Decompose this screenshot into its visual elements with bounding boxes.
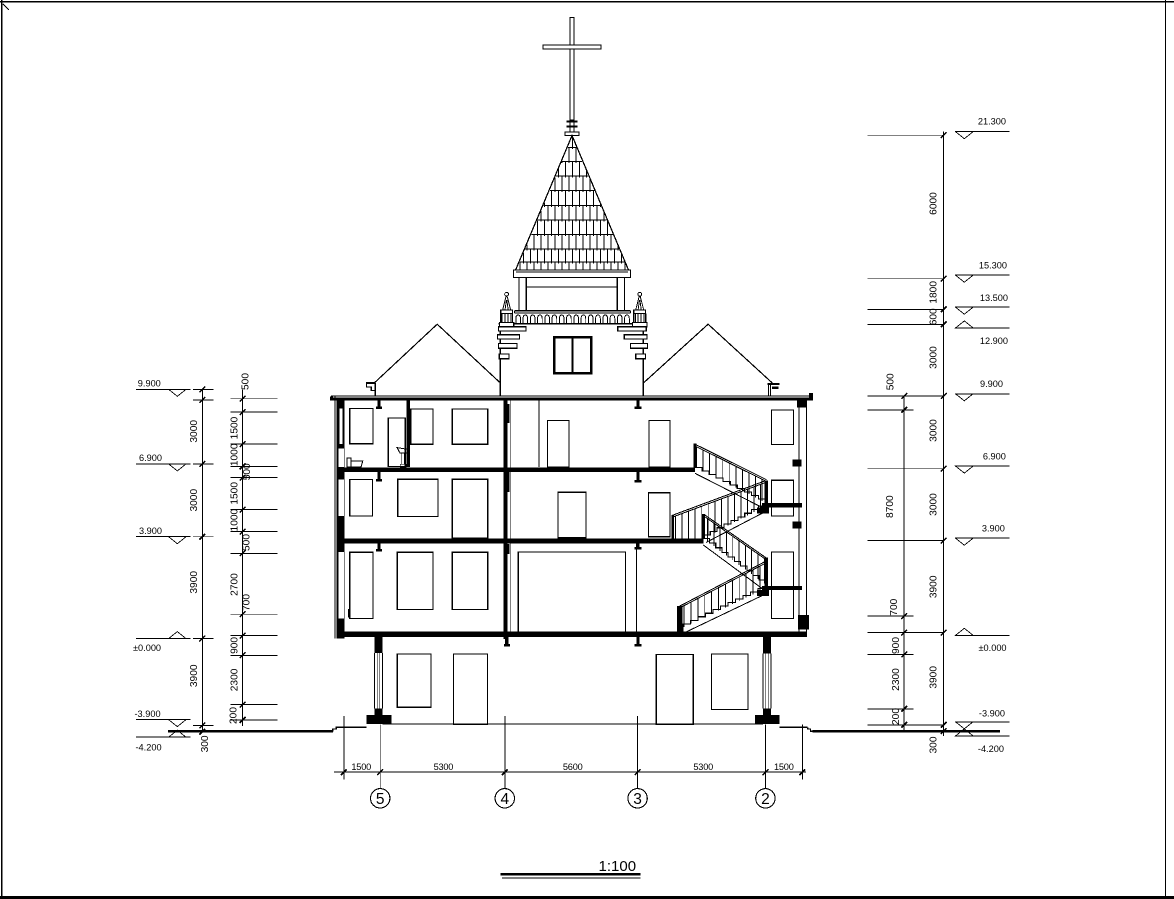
svg-text:3.900: 3.900 [982, 524, 1005, 534]
svg-text:1:100: 1:100 [599, 858, 637, 875]
svg-text:9.900: 9.900 [980, 379, 1003, 389]
svg-text:1000: 1000 [229, 508, 240, 531]
svg-text:4: 4 [500, 791, 509, 808]
svg-text:900: 900 [891, 637, 902, 654]
svg-text:300: 300 [929, 736, 940, 753]
svg-text:200: 200 [229, 707, 240, 724]
svg-text:3000: 3000 [928, 419, 939, 442]
svg-text:-3.900: -3.900 [135, 709, 161, 719]
svg-text:3900: 3900 [928, 666, 939, 689]
svg-text:500: 500 [241, 534, 252, 551]
svg-text:3.900: 3.900 [139, 526, 162, 536]
svg-text:9.900: 9.900 [138, 379, 161, 389]
svg-text:2700: 2700 [229, 573, 240, 596]
svg-text:2: 2 [761, 791, 770, 808]
svg-text:2300: 2300 [891, 668, 902, 691]
svg-text:700: 700 [889, 598, 900, 615]
svg-text:21.300: 21.300 [978, 117, 1006, 127]
svg-text:12.900: 12.900 [980, 336, 1008, 346]
svg-text:3000: 3000 [189, 489, 200, 512]
svg-text:5300: 5300 [434, 762, 454, 772]
svg-text:5300: 5300 [693, 762, 713, 772]
svg-text:6.900: 6.900 [139, 453, 162, 463]
svg-text:-4.200: -4.200 [978, 744, 1004, 754]
svg-text:1500: 1500 [774, 762, 794, 772]
svg-text:1000: 1000 [229, 443, 240, 466]
svg-text:3900: 3900 [928, 575, 939, 598]
svg-text:3000: 3000 [189, 420, 200, 443]
svg-text:200: 200 [891, 708, 902, 725]
svg-text:-3.900: -3.900 [979, 709, 1005, 719]
svg-text:700: 700 [241, 594, 252, 611]
svg-text:3000: 3000 [928, 493, 939, 516]
svg-text:3900: 3900 [189, 571, 200, 594]
svg-text:500: 500 [242, 463, 253, 480]
svg-text:500: 500 [886, 373, 897, 390]
svg-text:900: 900 [229, 637, 240, 654]
svg-text:±0.000: ±0.000 [133, 643, 161, 653]
svg-text:5: 5 [376, 791, 385, 808]
svg-text:600: 600 [928, 308, 939, 325]
svg-text:1500: 1500 [229, 482, 240, 505]
svg-text:5600: 5600 [563, 762, 583, 772]
svg-text:-4.200: -4.200 [136, 742, 162, 752]
svg-text:13.500: 13.500 [980, 293, 1008, 303]
svg-text:1500: 1500 [229, 416, 240, 439]
svg-text:3900: 3900 [189, 664, 200, 687]
svg-text:1500: 1500 [351, 762, 371, 772]
svg-text:±0.000: ±0.000 [979, 643, 1007, 653]
svg-text:6000: 6000 [928, 192, 939, 215]
svg-text:15.300: 15.300 [979, 260, 1007, 270]
svg-text:2300: 2300 [229, 668, 240, 691]
svg-text:3: 3 [633, 791, 642, 808]
svg-text:3000: 3000 [928, 346, 939, 369]
svg-text:6.900: 6.900 [983, 452, 1006, 462]
svg-text:500: 500 [240, 373, 251, 390]
svg-text:300: 300 [200, 735, 211, 752]
svg-text:8700: 8700 [885, 495, 896, 518]
svg-text:1800: 1800 [928, 281, 939, 304]
